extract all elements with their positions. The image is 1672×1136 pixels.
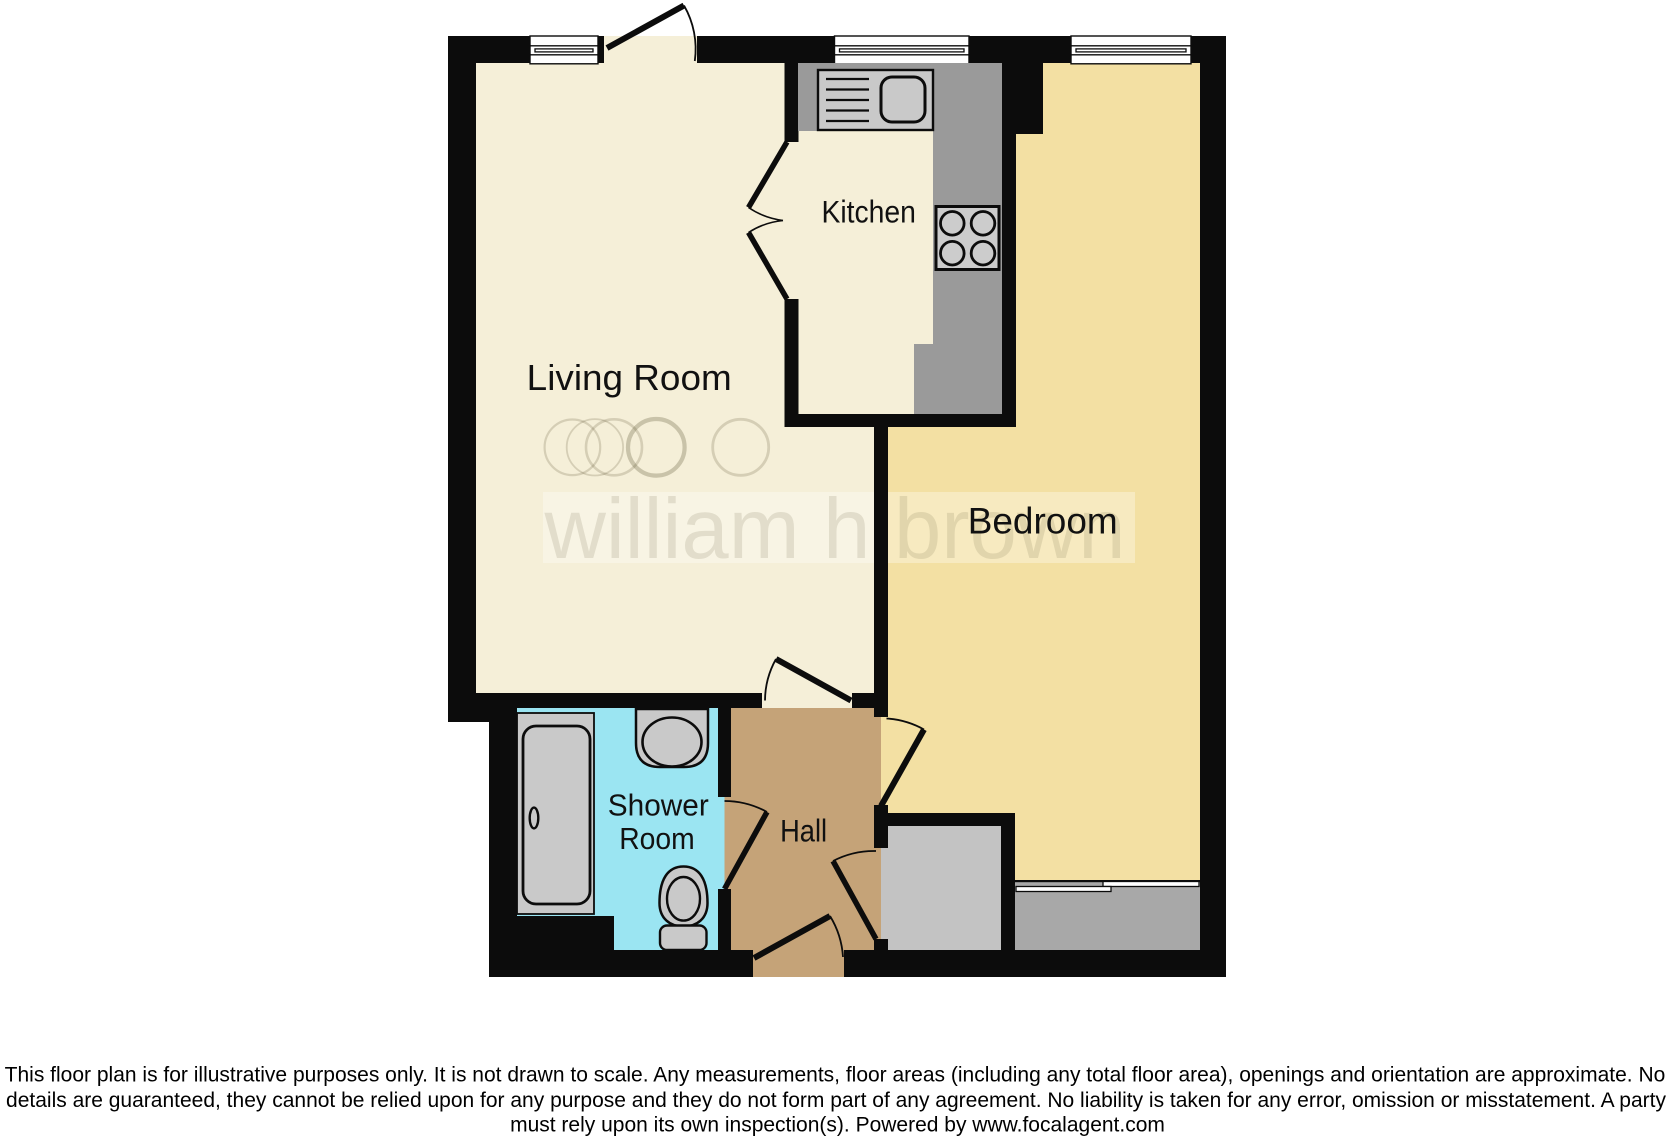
svg-text:Kitchen: Kitchen bbox=[821, 194, 916, 230]
svg-text:This floor plan is for illustr: This floor plan is for illustrative purp… bbox=[5, 1064, 1666, 1087]
svg-text:Shower: Shower bbox=[608, 788, 709, 823]
svg-text:Room: Room bbox=[619, 821, 695, 856]
svg-text:Bedroom: Bedroom bbox=[968, 501, 1118, 542]
svg-text:details are guaranteed, they c: details are guaranteed, they cannot be r… bbox=[6, 1089, 1666, 1112]
svg-text:Hall: Hall bbox=[780, 812, 827, 848]
svg-text:Living Room: Living Room bbox=[527, 357, 732, 398]
svg-text:must rely upon its own inspect: must rely upon its own inspection(s). Po… bbox=[510, 1114, 1165, 1136]
